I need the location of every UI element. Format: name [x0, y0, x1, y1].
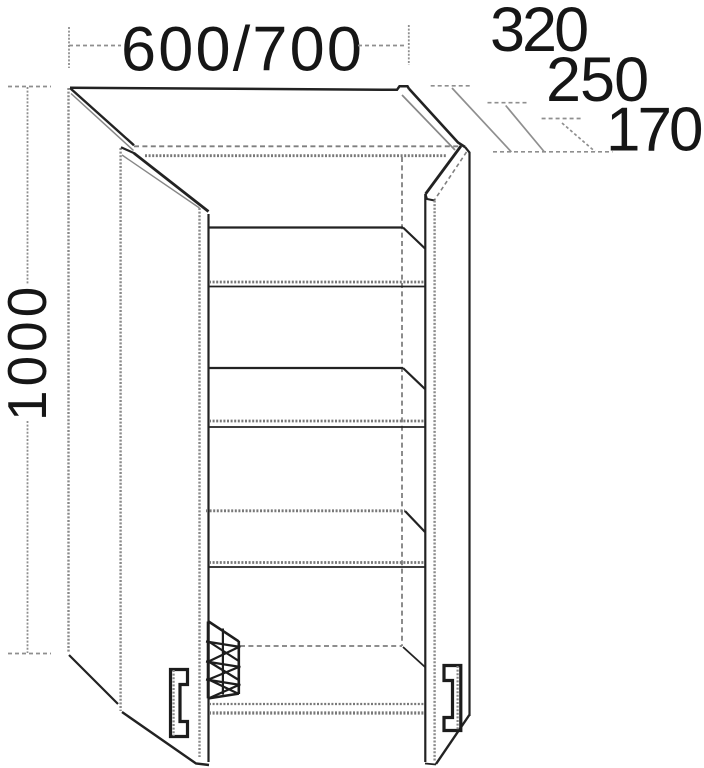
- svg-text:1000: 1000: [0, 283, 58, 421]
- svg-text:600/700: 600/700: [121, 15, 364, 85]
- svg-text:170: 170: [606, 96, 702, 165]
